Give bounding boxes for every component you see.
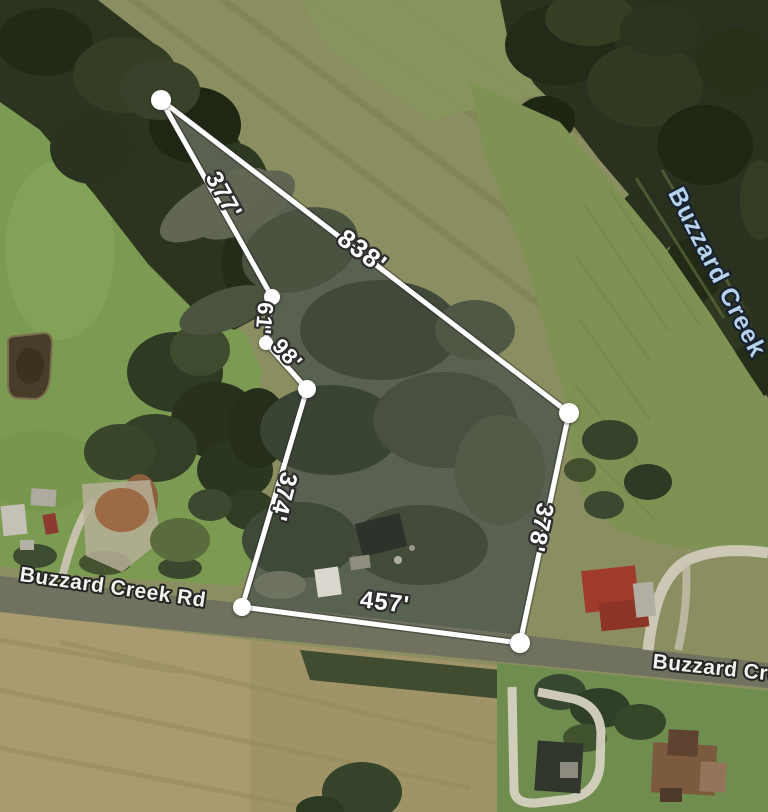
parcel-vertex-handle[interactable]: [233, 598, 251, 616]
map-canvas[interactable]: 377'61'98'374'457'378'838'Buzzard Creek …: [0, 0, 768, 812]
parcel-vertex-handle[interactable]: [151, 90, 171, 110]
dimension-label: 61': [251, 301, 279, 336]
parcel-vertex-handle[interactable]: [298, 380, 316, 398]
parcel-vertex-handle[interactable]: [559, 403, 579, 423]
pond: [8, 333, 52, 399]
house-dark-roof: [534, 740, 583, 793]
parcel-vertex-handle[interactable]: [510, 633, 530, 653]
aerial-imagery: [0, 0, 768, 812]
map-viewport[interactable]: 377'61'98'374'457'378'838'Buzzard Creek …: [0, 0, 768, 812]
